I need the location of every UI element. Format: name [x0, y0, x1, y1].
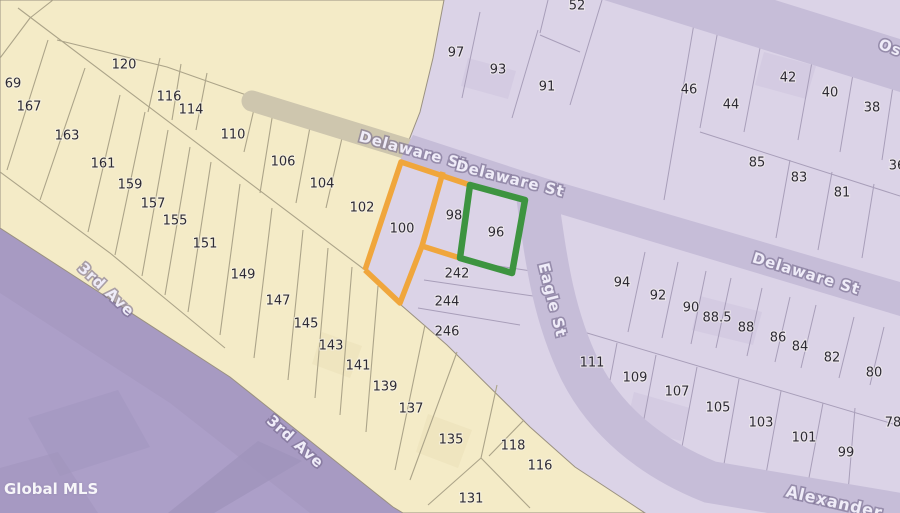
parcel-number-label: 131	[459, 492, 484, 507]
parcel-number-label: 88.5	[703, 311, 732, 326]
parcel-number-label: 161	[91, 157, 116, 172]
parcel-number-label: 52	[569, 0, 586, 14]
parcel-number-label: 94	[614, 276, 631, 291]
parcel-number-label: 110	[221, 128, 246, 143]
parcel-number-label: 98	[446, 209, 463, 224]
parcel-number-label: 84	[792, 340, 809, 355]
parcel-number-label: 151	[193, 237, 218, 252]
parcel-number-label: 104	[310, 177, 335, 192]
parcel-number-label: 120	[112, 58, 137, 73]
parcel-number-label: 109	[623, 371, 648, 386]
parcel-number-label: 86	[770, 331, 787, 346]
parcel-number-label: 106	[271, 155, 296, 170]
parcel-number-label: 111	[580, 356, 605, 371]
parcel-number-label: 242	[445, 267, 470, 282]
parcel-number-label: 145	[294, 317, 319, 332]
parcel-number-label: 96	[488, 226, 505, 241]
parcel-number-label: 78	[885, 416, 900, 431]
parcel-number-label: 99	[838, 446, 855, 461]
parcel-number-label: 116	[528, 459, 553, 474]
parcel-number-label: 100	[390, 222, 415, 237]
parcel-number-label: 81	[834, 186, 851, 201]
parcel-number-label: 143	[319, 339, 344, 354]
parcel-number-label: 88	[738, 321, 755, 336]
parcel-number-label: 141	[346, 359, 371, 374]
parcel-number-label: 167	[17, 100, 42, 115]
parcel-number-label: 157	[141, 197, 166, 212]
parcel-map[interactable]: 6916716316115915715515114914714514314113…	[0, 0, 900, 513]
parcel-number-label: 69	[5, 77, 22, 92]
parcel-number-label: 147	[266, 294, 291, 309]
parcel-number-label: 93	[490, 63, 507, 78]
parcel-number-label: 80	[866, 366, 883, 381]
parcel-number-label: 40	[822, 86, 839, 101]
parcel-number-label: 97	[448, 46, 465, 61]
parcel-number-label: 244	[435, 295, 460, 310]
parcel-number-label: 118	[501, 439, 526, 454]
parcel-number-label: 91	[539, 80, 556, 95]
parcel-number-label: 107	[665, 385, 690, 400]
parcel-number-label: 46	[681, 83, 698, 98]
parcel-number-label: 85	[749, 156, 766, 171]
parcel-number-label: 135	[439, 433, 464, 448]
parcel-number-label: 101	[792, 431, 817, 446]
parcel-number-label: 155	[163, 214, 188, 229]
parcel-number-label: 102	[350, 201, 375, 216]
parcel-number-label: 159	[118, 178, 143, 193]
parcel-number-label: 163	[55, 129, 80, 144]
parcel-number-label: 36	[889, 159, 900, 174]
parcel-number-label: 92	[650, 289, 667, 304]
parcel-number-label: 114	[179, 103, 204, 118]
parcel-number-label: 90	[683, 301, 700, 316]
watermark: Global MLS	[4, 480, 98, 498]
parcel-number-label: 149	[231, 268, 256, 283]
parcel-number-label: 139	[373, 380, 398, 395]
parcel-number-label: 38	[864, 101, 881, 116]
parcel-number-label: 82	[824, 351, 841, 366]
parcel-number-label: 44	[723, 98, 740, 113]
parcel-number-label: 42	[780, 71, 797, 86]
parcel-number-label: 83	[791, 171, 808, 186]
parcel-number-label: 246	[435, 325, 460, 340]
parcel-number-label: 105	[706, 401, 731, 416]
parcel-number-label: 103	[749, 416, 774, 431]
parcel-number-label: 137	[399, 402, 424, 417]
